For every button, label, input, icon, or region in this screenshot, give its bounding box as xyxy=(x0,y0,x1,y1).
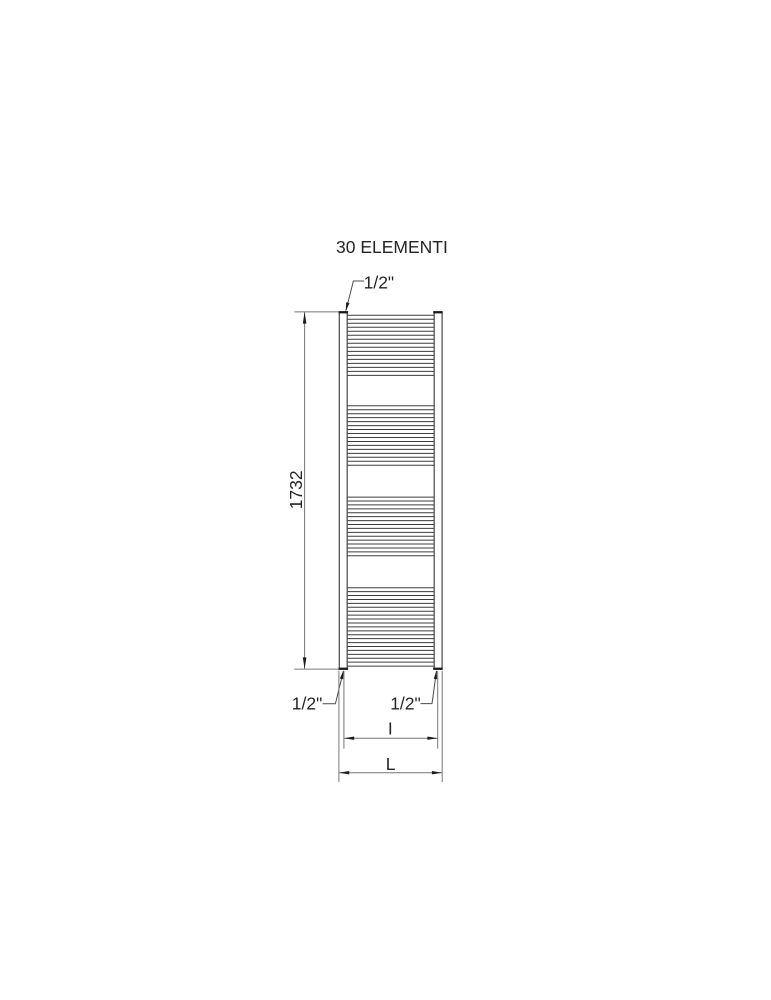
svg-text:1732: 1732 xyxy=(286,470,306,509)
svg-text:1/2": 1/2" xyxy=(390,694,421,714)
svg-text:30 ELEMENTI: 30 ELEMENTI xyxy=(336,237,448,257)
svg-text:1/2": 1/2" xyxy=(292,694,323,714)
svg-text:I: I xyxy=(388,719,393,739)
svg-text:1/2": 1/2" xyxy=(364,273,395,293)
svg-text:L: L xyxy=(386,754,396,774)
